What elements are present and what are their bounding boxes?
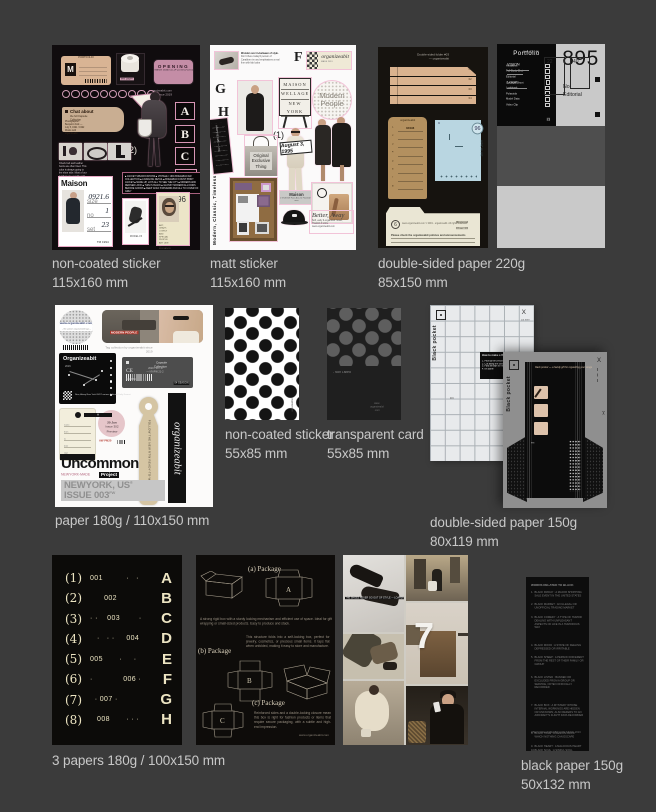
maison-fields: size0921.6 no1 set23: [87, 190, 111, 232]
index-row: (2) 002 B: [65, 588, 172, 608]
caption-line: 50x132 mm: [521, 776, 656, 795]
shopping-bag-sticker: Original Exclusive Thing: [245, 136, 277, 175]
kraft-row: 4: [392, 150, 423, 158]
row-number: (2): [65, 591, 90, 605]
pink-line: Issue 302: [98, 426, 125, 429]
blue-card-diecut: 96 5 ARCHIVE: [435, 120, 481, 181]
kraft-row-number: 2: [392, 134, 393, 137]
woman-in-black-photo-sticker: [238, 81, 272, 134]
index-row: (1) 001 · · A: [65, 568, 172, 588]
maison-gray-label-sticker: Maison 1 ST-MODE Faire Ave 23, Flamlind …: [280, 191, 313, 204]
product-matt-sticker-sheet: Wonder over in-between of style. Don't t…: [210, 45, 356, 250]
tan-square-pen: [534, 386, 548, 399]
kraft-row-number: 4: [392, 151, 393, 154]
product-polkadot-sticker: organizeabit: [225, 308, 299, 420]
row-number: (7): [65, 693, 90, 707]
black-word-text: BLACK SHEEP : A PERSON DIFFERENT FROM TH…: [535, 656, 584, 666]
dieline-c-label: C: [220, 717, 225, 725]
script-banner: organizeabit: [168, 393, 186, 503]
caption-3-papers: 3 papers 180g / 100x150 mm: [52, 752, 225, 771]
kraft-row-number: 7: [392, 176, 393, 179]
vision-label: VISION: [507, 63, 520, 67]
text-body: Don't there today'd person of Carabben i…: [241, 56, 280, 65]
black-word-item: BLACK COMEDY : A TYPE OF HUMOR DEALING W…: [531, 616, 584, 630]
kraft-row: 6: [392, 167, 423, 175]
sign-board-line: MAISON: [281, 81, 309, 90]
folder-strip: 03: [390, 86, 476, 95]
pink-chip: A: [84, 413, 112, 417]
instruction-line: 1. Pick up the prepared sheet with sciss…: [482, 360, 498, 361]
registration-mark-icon: [509, 360, 519, 370]
dieline-c-diagram: C: [198, 701, 248, 743]
package-b-heading: (b) Package: [198, 647, 231, 655]
card-96-note: ART, CRAZY, LOVELY AND SPECIAL PEOPLE AR…: [159, 224, 169, 250]
row-letter: D: [157, 630, 172, 647]
row-code: 002: [90, 595, 157, 602]
sign-board-line: NEW YORK: [281, 100, 309, 118]
modern-people-circle-sticker: Modern People: [313, 81, 351, 119]
pocket-side-flap: [507, 436, 527, 502]
instruction-line: 2. Cut along the dashed lines: [482, 363, 498, 364]
card-96-photo: [159, 196, 179, 222]
dieline-a-diagram: A: [252, 569, 328, 609]
model-leg: [148, 137, 154, 166]
pink-preview-circle: A 20 Jun Issue 302 Preview: [98, 410, 125, 437]
row-letter: A: [157, 570, 172, 587]
opening-badge-sticker: OPENING Maison Studio 10.14-25 09:00-18:…: [153, 59, 194, 85]
chat-lines: Photographer: Benjamin Folk — July 5, 19…: [65, 120, 86, 135]
index-row: (4) · · · 004 D: [65, 629, 172, 649]
maison-card-sticker: Maison size0921.6 no1 set23 TM 1994: [58, 176, 113, 247]
model-bag: [138, 119, 152, 137]
product-folder-paper-back: Double-sided folder #03 — organizeabit (…: [497, 44, 605, 248]
product-photo-collage-paper: THE SHOES NEVER GO OUT OF STYLE — LOAFER…: [343, 555, 468, 745]
caption-line: 3 papers 180g / 100x150 mm: [52, 752, 225, 771]
tape-roll-sticker: test paper: [116, 53, 145, 85]
text-head: Wonder over in-between of style.: [241, 52, 279, 54]
belt-photo: [84, 143, 107, 160]
letter-sticker-c: C: [175, 147, 195, 165]
caption-line: black paper 150g: [521, 757, 656, 776]
ring-logo: [317, 188, 327, 198]
script-line: Better, Away: [312, 212, 351, 219]
black-word-text: BLACK FRIDAY : A MAJOR SHOPPING SALE EVE…: [535, 591, 584, 598]
registered-mark: ®: [130, 480, 133, 485]
bottom-form-block: Line 03 - 46 VISION LOOK 22 40: [497, 126, 605, 186]
sign-board-panel: MAISONWELLAGENEW YORK: [279, 78, 311, 116]
card-note: MODEL'23: [125, 235, 146, 238]
strip-label: 01: [469, 68, 472, 71]
number-seven-photo: 7: [406, 603, 468, 684]
portfolio-item-label: Editorial: [506, 76, 516, 79]
tag-barcode: [85, 79, 107, 83]
package-paragraph: Reinforced sides and a double-locking cl…: [254, 711, 331, 730]
row-letter: B: [157, 590, 172, 607]
row-code: · · · 004: [90, 635, 157, 642]
caption-polkadot-sticker: non-coated sticker 55x85 mm: [225, 426, 334, 464]
tan-square: [534, 422, 548, 435]
kraft-row: 8: [392, 184, 423, 192]
product-folder-paper-front: Double-sided folder #03 — organizeabit 0…: [378, 47, 488, 248]
brand-sub: MADE 2019: [321, 60, 341, 63]
text-block-sticker: Wonder over in-between of style. Don't t…: [241, 52, 282, 70]
row-code: 008 · · ·: [90, 716, 157, 723]
caption-noncoated-sticker: non-coated sticker 115x160 mm: [52, 255, 161, 293]
field-value: 1: [105, 206, 109, 215]
black-word-item: BLACK LISTED : BANNED OR EXCLUDED FROM A…: [531, 676, 584, 690]
dot-pattern-area: [327, 308, 401, 366]
instruction-line: 3. Fold all flaps at the line and attach…: [482, 365, 498, 366]
caption-line: non-coated sticker: [52, 255, 161, 274]
brand-year: 2016: [65, 365, 113, 368]
black-words-title: WORDS RELATED TO BLACK: [531, 584, 558, 587]
kraft-tag-sticker: PORTFOLIO M: [61, 56, 111, 85]
dot-texture: [569, 440, 581, 492]
site-footer: www. organizeabit .com: [369, 402, 386, 412]
black-words-list: BLACK FRIDAY : A MAJOR SHOPPING SALE EVE…: [531, 591, 584, 751]
kraft-row-number: 1: [392, 126, 393, 129]
black-pocket-vertical-label: Black pocket: [506, 376, 512, 412]
site-sub: - the uptown organizeabit tags -: [59, 328, 93, 330]
black-brand-card: Organizeabit 2016 New, Alwey New York 09…: [59, 353, 116, 404]
field-label: set: [87, 227, 95, 233]
portfolio-item: Video Clip: [506, 102, 550, 108]
sign-board-legs: [279, 116, 311, 128]
black-cap-sticker: [281, 210, 309, 229]
row-number: (5): [65, 652, 90, 666]
folder-strips-diecut: 01020304: [390, 67, 476, 105]
box-40: 40: [570, 57, 590, 89]
kraft-row: 2: [392, 133, 423, 141]
cafe-person-photo: [406, 686, 468, 745]
maison-footer: TM 1994: [97, 241, 109, 244]
index-row: (3) · · 003 · C: [65, 609, 172, 629]
kraft-row: 5: [392, 159, 423, 167]
product-transparent-card: - Non Listed www. organizeabit .com: [327, 308, 401, 420]
pink-line: Preview: [98, 430, 125, 433]
portfolio-chip: 23: [547, 118, 550, 121]
caption-line: non-coated sticker: [225, 426, 334, 445]
letter-sticker-a: A: [175, 102, 195, 120]
product-package-diagram-paper: (a) Package A A strong rigid box with a …: [196, 555, 335, 745]
box-22: 22: [544, 57, 565, 95]
row-code: · 007 ·: [90, 696, 157, 703]
tag-writein-lines: [79, 64, 107, 78]
portfolio-item-label: Video Clip: [506, 104, 518, 107]
barcode: [63, 345, 89, 350]
black-word-text: BLACK SOUL : A SINFUL SOUL: [535, 749, 584, 751]
modern-people-label: MODERN PEOPLE: [110, 331, 138, 335]
checker-pattern: [307, 52, 318, 69]
product-pocket-sheet: Black pocket X ✂ black pocket — a handy …: [503, 352, 607, 508]
caption-line: 80x119 mm: [430, 533, 577, 552]
cut-note: cut here: [521, 319, 530, 321]
kraft-row: 7: [392, 175, 423, 183]
fn-mark: FN: [531, 442, 534, 445]
legs-photo: [343, 634, 404, 679]
row-code: · 006 ·: [90, 676, 157, 683]
row-number: (8): [65, 713, 90, 727]
checkbox-square: [545, 97, 550, 102]
product-black-words-paper: WORDS RELATED TO BLACK BLACK FRIDAY : A …: [526, 577, 589, 751]
dieline-a-label: A: [286, 586, 291, 594]
blue-vertical-text: ARCHIVE: [437, 140, 483, 157]
side-note: organizeabit: [290, 398, 293, 412]
black-pocket-diecut: black pocket — a handy gift for organizi…: [525, 362, 585, 498]
cream-suit-model-sticker: [282, 128, 310, 198]
editorial-label: Editorial: [563, 92, 582, 100]
row-code: 001 · ·: [90, 575, 157, 582]
portfolio-item-label: Model Data: [506, 98, 520, 101]
bw-photo-card-sticker: MODEL'23: [122, 198, 149, 245]
caption-line: 85x150 mm: [378, 274, 525, 293]
dot-column: [110, 360, 112, 396]
product-index-paper: (1) 001 · · A (2) 002 B (3) · · 003 · C …: [52, 555, 182, 745]
row-code: 005 · ·: [90, 656, 157, 663]
street-photo: [406, 555, 468, 601]
caption-matt-sticker: matt sticker 115x160 mm: [210, 255, 286, 293]
row-number: (4): [65, 632, 90, 646]
chat-about-label-sticker: Chat about the full Capsule Collection P…: [62, 107, 124, 132]
black-word-item: BLACK BOX : A MYSTERY WHOSE INTERNAL WOR…: [531, 704, 584, 718]
cream-hairlines: [391, 238, 475, 243]
cream-folder-diecut: Collection No. 03/196 6 Business hours 9…: [386, 207, 480, 246]
maison-photo: [62, 190, 84, 232]
black-word-item: BLACK MARKET : AN ILLEGAL OR UNOFFICIAL …: [531, 603, 584, 610]
shoes-photo-sticker: [215, 52, 238, 69]
row-letter: F: [157, 671, 172, 688]
uncommon-title: Uncommon: [61, 455, 139, 472]
letter-sticker-g: G: [215, 82, 226, 98]
index-row: (6) · 006 · F: [65, 669, 172, 689]
row-letter: G: [157, 691, 172, 708]
spec-text-block-sticker: ■ JACKET SPECIFICATIONS ■ VINTAGE / 1991…: [122, 172, 200, 194]
fn-mark: FN: [450, 397, 454, 400]
caption-line: 115x160 mm: [52, 274, 161, 293]
index-row: (5) 005 · · E: [65, 649, 172, 669]
strip-label: 03: [469, 88, 472, 91]
row-code: · · 003 ·: [90, 615, 157, 622]
checkbox-square: [545, 103, 550, 108]
black-word-text: BLACK COMEDY : A TYPE OF HUMOR DEALING W…: [535, 616, 584, 630]
chat-title: Chat about: [70, 109, 94, 114]
bag-line: Thing: [252, 164, 271, 169]
caption-transparent-card: transparent card 55x85 mm: [327, 426, 424, 464]
cut-mark-x: X: [597, 358, 601, 364]
caption-black-paper: black paper 150g 50x132 mm: [521, 757, 656, 795]
scissors-icon: ✂: [600, 411, 606, 416]
black-word-item: BLACK MOOD : A STATE OF FEELING DEPRESSE…: [531, 644, 584, 651]
product-noncoated-sticker-sheet: PORTFOLIO M test paper OPENING Maison St…: [52, 45, 200, 250]
capsule-date: 2020 / 09 / 27 — NY/FW 21-2: [145, 367, 163, 374]
caption-line: matt sticker: [210, 255, 286, 274]
cosmetics-photo: [59, 143, 82, 160]
tag-hole: [75, 412, 81, 418]
cream-lines: www.organizeabit.com © 2019 - organizeab…: [402, 222, 488, 225]
index-row: (7) · 007 · G: [65, 690, 172, 710]
mini-barcode: [117, 440, 126, 444]
brand-title: Organizeabit: [63, 356, 96, 362]
date-stamp-sticker: August 3, 1995: [279, 140, 312, 156]
black-word-text: BLACK BOX : A MYSTERY WHOSE INTERNAL WOR…: [535, 704, 584, 718]
caption-line: double-sided paper 220g: [378, 255, 525, 274]
dieline-b-diagram: B: [222, 657, 278, 705]
vertical-tagline: Modern, Classic, Timeless: [212, 173, 217, 245]
kraft-row-number: 5: [392, 160, 393, 163]
cork-board-collage-sticker: [230, 178, 277, 241]
maison-label-sub: 1 ST-MODE Faire Ave 23, Flamlind St. are…: [280, 197, 313, 202]
cut-mark-x: X: [522, 309, 526, 316]
index-row: (8) 008 · · · H: [65, 710, 172, 730]
caption-line: double-sided paper 150g: [430, 514, 577, 533]
field-value: 0921.6: [88, 192, 109, 201]
model-leg: [154, 137, 160, 166]
package-paragraph: This structure folds into a self-locking…: [246, 635, 330, 649]
row-letter: E: [157, 651, 172, 668]
kraft-title: organizeabit: [392, 119, 423, 122]
site-url: www.organizeabit.com: [59, 322, 93, 325]
caption-line: 55x85 mm: [327, 445, 424, 464]
non-listed-note: - Non Listed: [333, 371, 351, 374]
look-label: LOOK: [507, 81, 517, 85]
black-word-text: BLACK LISTED : BANNED OR EXCLUDED FROM A…: [535, 676, 584, 690]
uncommon-wordmark: Uncommon NEWYORK-MADE Project: [61, 455, 139, 478]
tape-roll-graphic: [121, 57, 139, 72]
folder-header: Double-sided folder #03 — organizeabit: [414, 53, 449, 61]
strip-label: 04: [469, 97, 472, 100]
script-note: Soft, early & organized. Good, Thanks! A…: [312, 219, 351, 228]
row-letter: H: [157, 711, 172, 728]
instruction-line: 4. It's done!: [482, 368, 498, 369]
letter-sticker-b: B: [175, 125, 195, 143]
crouching-person-photo: [343, 681, 404, 745]
black-word-text: BLACK MOOD : A STATE OF FEELING DEPRESSE…: [535, 644, 584, 651]
loafers-photo: THE SHOES NEVER GO OUT OF STYLE — LOAFER…: [343, 555, 404, 632]
black-word-item: BLACK SOUL : A SINFUL SOUL: [531, 749, 584, 751]
modern-people-photo: MODERN PEOPLE: [102, 310, 203, 343]
registration-mark-icon: [436, 310, 446, 320]
caption-line: paper 180g / 110x150 mm: [55, 512, 209, 531]
sign-board-sticker: MAISONWELLAGENEW YORK: [279, 78, 311, 128]
tape-label: test paper: [120, 78, 134, 81]
boot-photo: [108, 143, 131, 160]
site-footer: www.organizeabit.com: [299, 734, 329, 737]
black-word-item: BLACK SHEEP : A PERSON DIFFERENT FROM TH…: [531, 656, 584, 666]
issue-number: ISSUE 003: [64, 490, 109, 501]
kraft-row: 1: [392, 125, 423, 133]
black-pocket-vertical-label: Black pocket: [432, 325, 438, 361]
caption-line: 55x85 mm: [225, 445, 334, 464]
black-word-item: BLACK FRIDAY : A MAJOR SHOPPING SALE EVE…: [531, 591, 584, 598]
product-paper-180-sheet: www.organizeabit.com - the uptown organi…: [55, 305, 213, 507]
bullet-square: [65, 110, 68, 113]
dotted-circle-logo: www.organizeabit.com - the uptown organi…: [59, 310, 93, 344]
barcode-number: 844-5684: [126, 378, 180, 381]
loafers-caption: THE SHOES NEVER GO OUT OF STYLE — LOAFER…: [345, 597, 404, 599]
letter-sticker-f: F: [294, 50, 303, 66]
brand-address: New, Alwey New York 09/07 various Editor…: [75, 393, 132, 396]
tag-header: PORTFOLIO: [61, 56, 111, 59]
opening-subtitle: Maison Studio 10.14-25 09:00-18:00: [154, 69, 193, 72]
black-square: [595, 112, 600, 117]
row-number: (6): [65, 672, 90, 686]
package-a-3d-diagram: [200, 571, 246, 601]
caption-line: 115x160 mm: [210, 274, 286, 293]
script-note-sticker: Better, Away Soft, early & organized. Go…: [310, 211, 353, 233]
product-photo-strip: [59, 143, 131, 160]
season-chip: 04 SEASON: [173, 382, 189, 385]
project-chip: Project: [99, 472, 118, 478]
pocket-side-flap: [583, 436, 603, 502]
banner-script-text: organizeabit: [172, 422, 183, 475]
field-value: 23: [102, 220, 110, 229]
issue-box: NEWYORK, US® ISSUE 003FW: [61, 480, 165, 501]
capsule-collection-card: Capsule Collection 2020 / 09 / 27 — NY/F…: [122, 357, 193, 388]
row-number: (3): [65, 612, 90, 626]
folder-strip: 04: [390, 96, 476, 105]
row-number: (1): [65, 571, 90, 585]
row-letter: C: [157, 610, 172, 627]
folder-strip: 02: [390, 77, 476, 86]
kraft-row-number: 8: [392, 185, 393, 188]
package-c-heading: (c) Package: [252, 699, 285, 707]
qr-code: [63, 391, 72, 400]
package-paragraph: A strong rigid box with a sturdy locking…: [200, 617, 332, 627]
pocket-script: black pocket — a handy gift for organizi…: [535, 366, 595, 369]
caption-double-sided-150: double-sided paper 150g 80x119 mm: [430, 514, 577, 552]
circled-six: 6: [391, 220, 400, 229]
barcode-banner-sticker: ARCHIVE 1995 — NYC: [210, 118, 233, 174]
black-word-item: BLACK HEART : A MALICIOUS HEART: [531, 745, 584, 748]
kraft-row-number: 6: [392, 168, 393, 171]
pink-line: 20 Jun: [98, 421, 125, 424]
dashed-cut-line: [597, 368, 598, 382]
maison-title: Maison: [61, 179, 110, 188]
bag-handle: [253, 136, 269, 146]
issue-season: FW: [109, 490, 115, 495]
bw-photo: [125, 201, 146, 233]
tan-square: [534, 404, 548, 417]
caption-paper-180: paper 180g / 110x150 mm: [55, 512, 209, 531]
black-word-text: BLACK HEART : A MALICIOUS HEART: [535, 745, 584, 748]
kraft-row-number: 3: [392, 143, 393, 146]
hours-box: 9 am - 6 pm: [456, 227, 468, 229]
product-catalog-sheet: PORTFOLIO M test paper OPENING Maison St…: [0, 0, 656, 812]
kraft-list-tag-diecut: organizeabit 03/196 12345678: [388, 117, 427, 199]
spec-text: ■ JACKET SPECIFICATIONS ■ VINTAGE / 1991…: [125, 175, 199, 193]
instruction-title: How to make a Black Pocket: [482, 354, 501, 357]
sign-board-line: WELLAGE: [281, 90, 309, 99]
black-word-text: BLACK MARKET : AN ILLEGAL OR UNOFFICIAL …: [535, 603, 584, 610]
caption-line: transparent card: [327, 426, 424, 445]
big-seven: 7: [414, 615, 434, 657]
tag-letter-m: M: [65, 63, 76, 76]
package-b-3d-diagram: [282, 661, 332, 703]
card-96-sticker: 96 ART, CRAZY, LOVELY AND SPECIAL PEOPLE…: [156, 192, 190, 246]
caption-double-sided-220: double-sided paper 220g 85x150 mm: [378, 255, 525, 293]
dot-strip: [439, 175, 477, 178]
uncommon-sub: NEWYORK-MADE: [61, 473, 90, 476]
dieline-b-label: B: [247, 677, 252, 685]
black-words-footer: WWW.ORGANIZEABIT.COM SINCE 2019: [531, 731, 581, 734]
blue-number: 5: [438, 122, 440, 125]
two-models-photo-sticker: [314, 119, 353, 183]
folder-strip: 01: [390, 67, 476, 76]
corner-circle: 96: [472, 123, 484, 135]
strip-label: 02: [469, 78, 472, 81]
black-square: [595, 77, 600, 82]
line-label: Line 03 - 46: [523, 50, 605, 54]
